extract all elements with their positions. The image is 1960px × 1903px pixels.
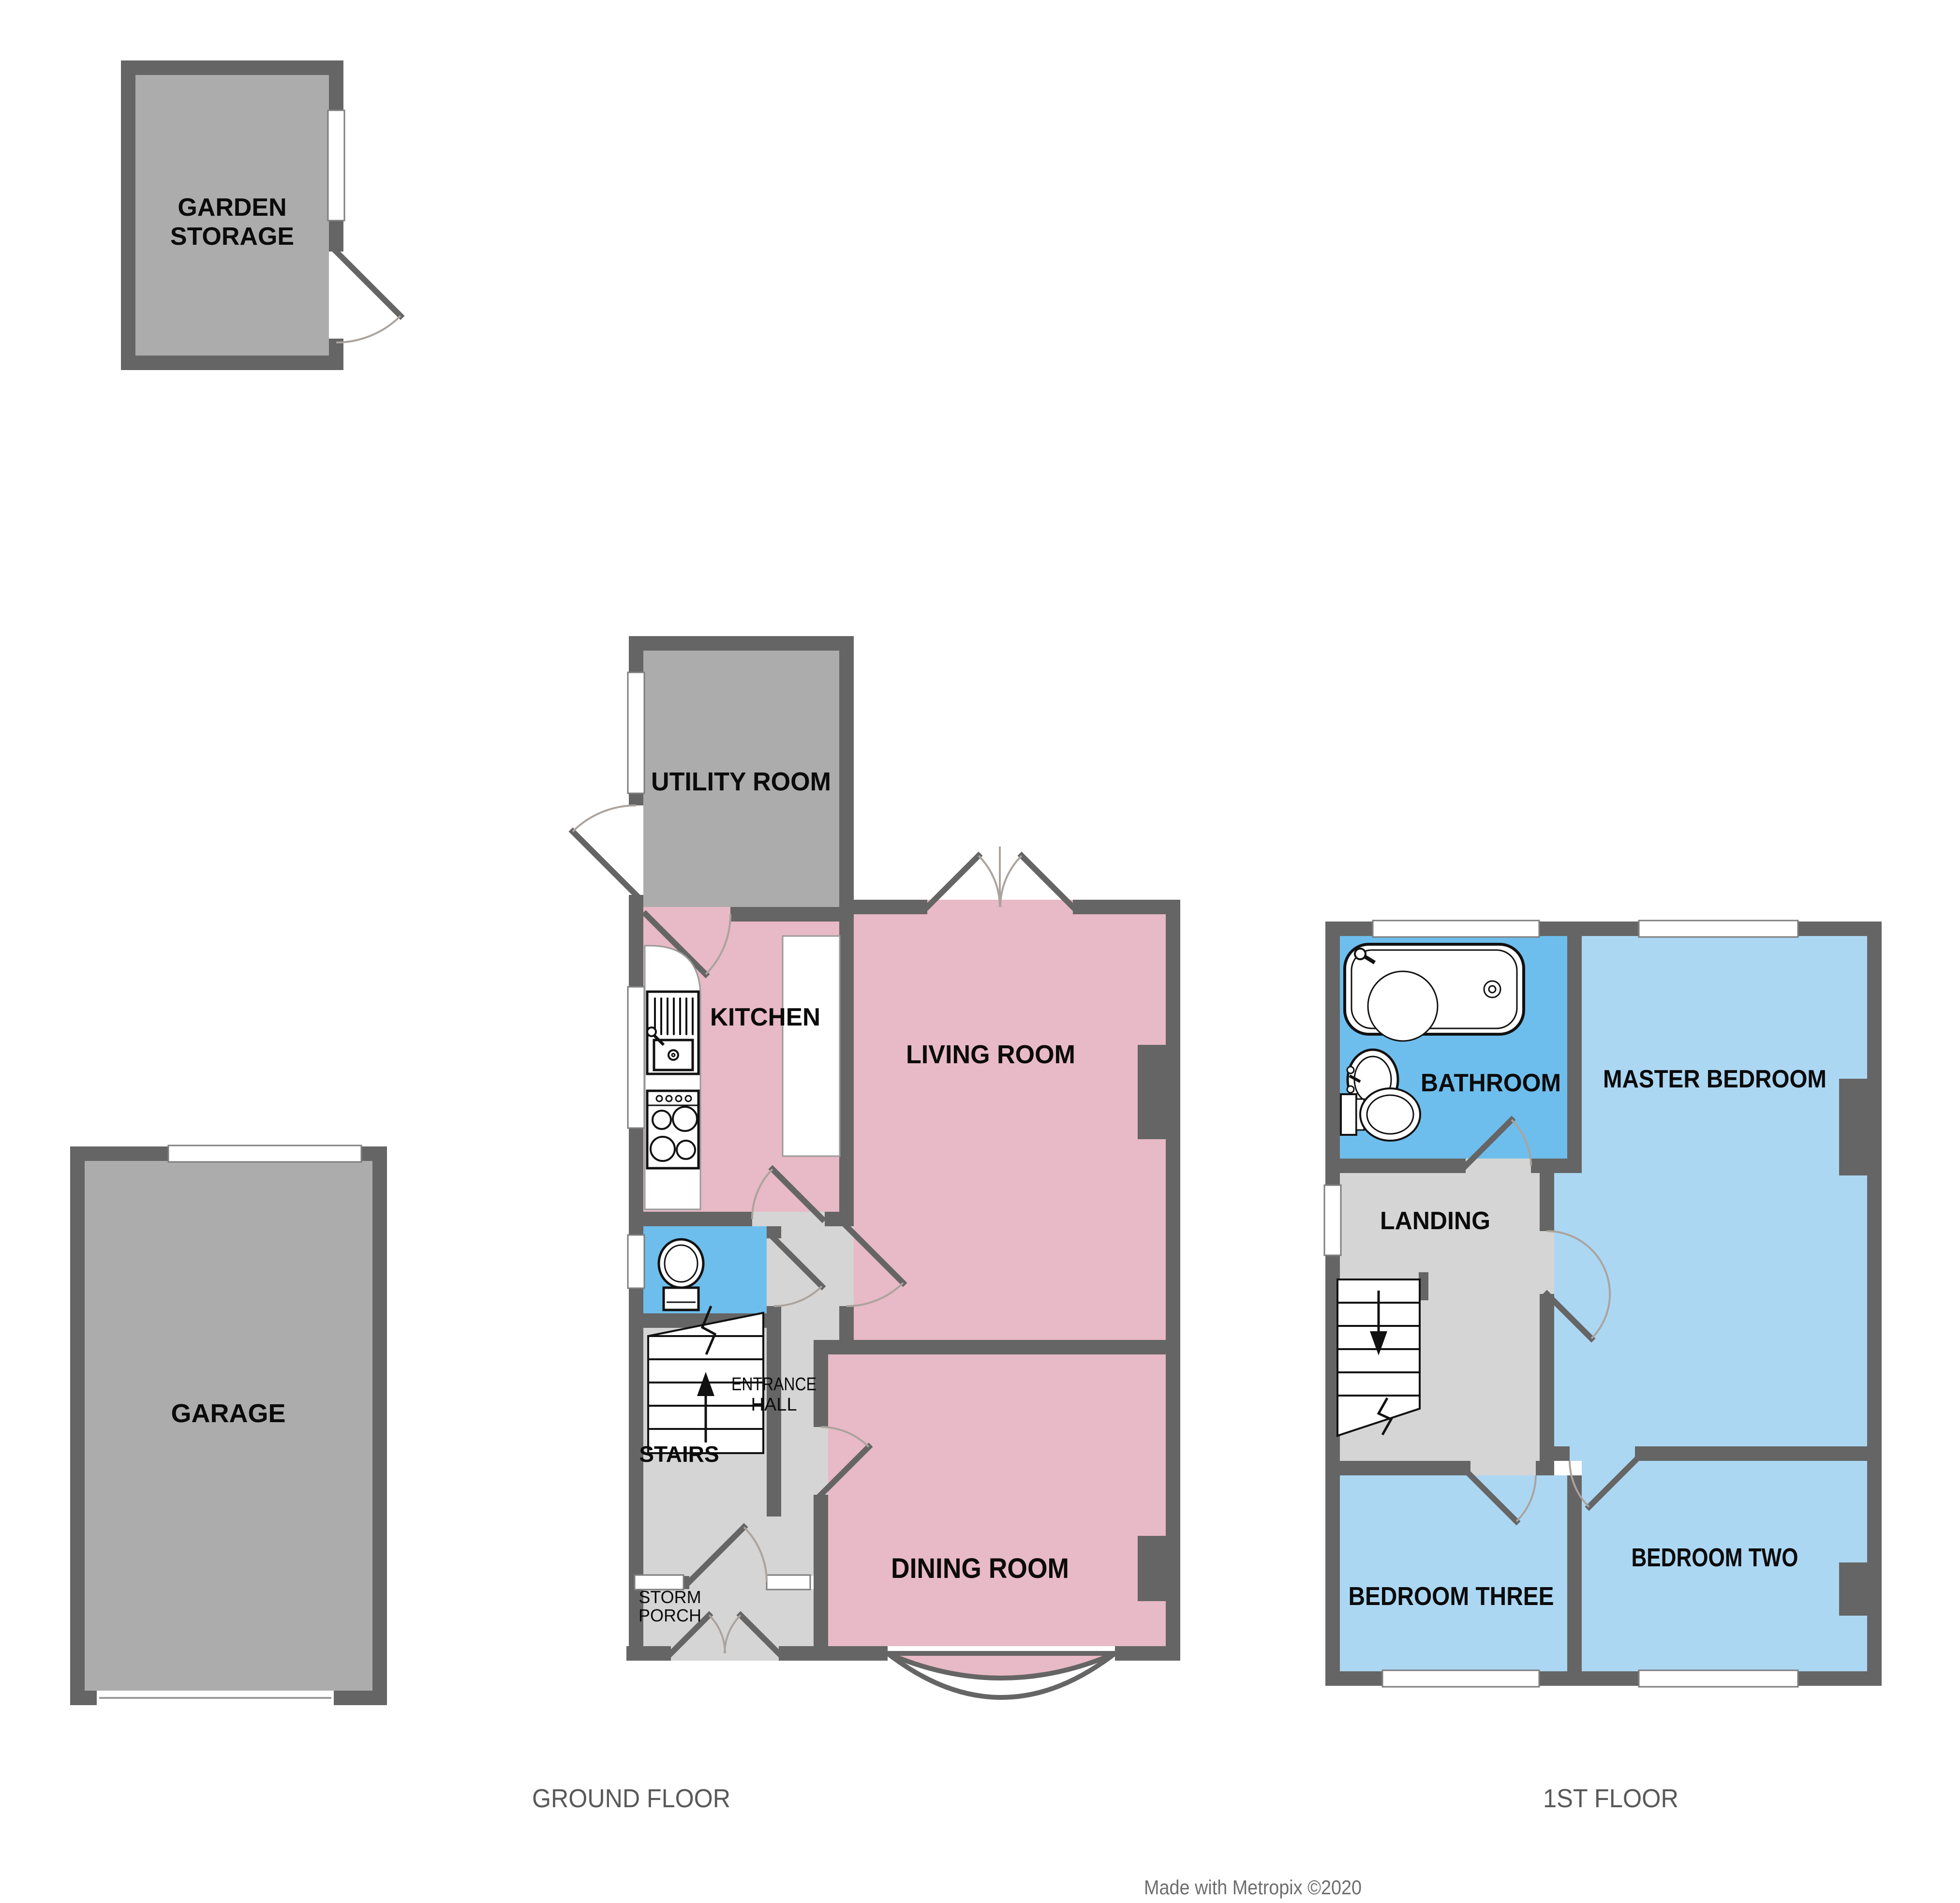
garden-storage-label-line1: GARDEN bbox=[178, 193, 286, 222]
bedroom-two-label: BEDROOM TWO bbox=[1632, 1543, 1798, 1572]
garage-window bbox=[168, 1145, 361, 1162]
dining-room-label: DINING ROOM bbox=[891, 1553, 1069, 1584]
bathroom-door-threshold bbox=[1466, 1159, 1531, 1173]
first-floor-stairs-icon bbox=[1337, 1279, 1420, 1436]
hall-living-threshold bbox=[839, 1226, 854, 1306]
garage-room: GARAGE bbox=[70, 1145, 387, 1705]
wc-window bbox=[628, 1235, 644, 1288]
entrance-hall-label-line1: ENTRANCE bbox=[731, 1374, 817, 1395]
bedroom-two-chimney-breast bbox=[1839, 1562, 1867, 1616]
ground-floor-plan: UTILITY ROOM KITCHEN LIVING ROOM DINING … bbox=[573, 636, 1180, 1697]
master-bedroom-chimney-breast bbox=[1839, 1079, 1867, 1175]
kitchen-label: KITCHEN bbox=[710, 1003, 820, 1031]
kitchen-cooker-icon bbox=[647, 1091, 698, 1168]
garden-storage-window bbox=[328, 110, 344, 221]
bay-window bbox=[888, 1653, 1115, 1697]
utility-room-label: UTILITY ROOM bbox=[651, 767, 831, 796]
bedroom-three-door-threshold bbox=[1470, 1461, 1536, 1475]
living-room-label: LIVING ROOM bbox=[906, 1040, 1075, 1069]
utility-window bbox=[628, 672, 644, 793]
utility-external-door bbox=[573, 805, 636, 895]
living-room-floor bbox=[854, 914, 1166, 1340]
master-bedroom-label: MASTER BEDROOM bbox=[1603, 1065, 1826, 1093]
hall-floor-upper bbox=[781, 1226, 839, 1354]
dining-room-floor bbox=[828, 1354, 1166, 1646]
bathtub-icon bbox=[1345, 944, 1524, 1041]
kitchen-window bbox=[628, 987, 644, 1128]
porch-window-right bbox=[767, 1575, 810, 1590]
garage-label: GARAGE bbox=[171, 1399, 285, 1428]
storm-porch-label-line1: STORM bbox=[638, 1587, 701, 1607]
garage-door-opening bbox=[97, 1692, 334, 1704]
first-floor-plan: BATHROOM MASTER BEDROOM LANDING BEDROOM … bbox=[1324, 921, 1882, 1687]
landing-label: LANDING bbox=[1380, 1207, 1490, 1235]
utility-kitchen-threshold bbox=[643, 907, 730, 922]
wc-door-threshold bbox=[767, 1238, 781, 1306]
entrance-hall-label-line2: HALL bbox=[751, 1395, 797, 1415]
hall-dining-threshold bbox=[814, 1427, 828, 1495]
bedroom-three-label: BEDROOM THREE bbox=[1349, 1582, 1554, 1611]
kitchen-sink-icon bbox=[647, 992, 698, 1074]
bedroom-two-door-threshold bbox=[1570, 1446, 1635, 1461]
hall-floor-lower bbox=[643, 1516, 781, 1576]
first-floor-caption: 1ST FLOOR bbox=[1543, 1784, 1678, 1813]
bedroom-two-window bbox=[1639, 1670, 1798, 1687]
storm-porch-label-line2: PORCH bbox=[638, 1606, 701, 1625]
living-room-chimney-breast bbox=[1138, 1045, 1166, 1139]
bedroom-three-floor bbox=[1340, 1475, 1567, 1671]
garden-storage-label-line2: STORAGE bbox=[170, 223, 294, 251]
landing-window bbox=[1324, 1185, 1341, 1255]
floorplan-canvas: GARDEN STORAGE GARAGE bbox=[0, 0, 1960, 1903]
floorplan-page: GARDEN STORAGE GARAGE bbox=[0, 0, 1960, 1903]
wc-toilet-icon bbox=[659, 1239, 703, 1310]
garden-storage-room: GARDEN STORAGE bbox=[121, 60, 401, 370]
bathroom-window bbox=[1373, 921, 1539, 937]
bathroom-toilet-icon bbox=[1341, 1088, 1420, 1141]
master-bedroom-window bbox=[1639, 921, 1798, 937]
stairs-label: STAIRS bbox=[639, 1442, 719, 1467]
living-room-french-doors bbox=[927, 847, 1073, 907]
kitchen-counter bbox=[645, 946, 700, 1209]
master-bedroom-floor bbox=[1554, 936, 1867, 1446]
dining-room-chimney-breast bbox=[1138, 1536, 1166, 1601]
bathroom-label: BATHROOM bbox=[1421, 1069, 1561, 1097]
kitchen-worktop-unit bbox=[783, 936, 840, 1156]
bedroom-three-window bbox=[1382, 1670, 1539, 1687]
master-door-threshold bbox=[1540, 1231, 1554, 1294]
garden-storage-door bbox=[336, 252, 401, 342]
metropix-credit: Made with Metropix ©2020 bbox=[1144, 1876, 1362, 1899]
ground-floor-caption: GROUND FLOOR bbox=[532, 1784, 730, 1813]
